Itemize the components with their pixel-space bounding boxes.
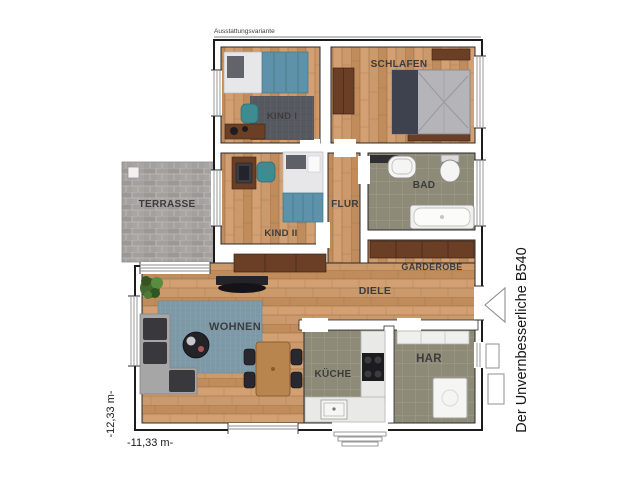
floor-plan-drawing: KIND I SCHLAFEN KIND II FLUR BAD TERRASS… <box>0 0 624 480</box>
toilet <box>440 155 460 182</box>
door-kind1 <box>300 139 320 148</box>
room-label-kind1: KIND I <box>267 111 297 122</box>
room-label-wohnen: WOHNEN <box>209 321 261 333</box>
floor-plan-canvas: KIND I SCHLAFEN KIND II FLUR BAD TERRASS… <box>0 0 624 480</box>
wall-kueche-har <box>384 326 394 423</box>
dimension-height-label: -12,33 m- <box>105 390 117 437</box>
tv-sideboard <box>234 254 326 272</box>
room-label-bad: BAD <box>413 180 436 191</box>
door-har <box>397 318 421 332</box>
kind2-bed <box>283 152 323 222</box>
tv <box>216 276 268 293</box>
door-schlafen <box>334 139 356 157</box>
room-label-terrasse: TERRASSE <box>139 199 196 210</box>
dining-chair <box>291 349 302 365</box>
cooktop <box>362 353 384 381</box>
coffee-table <box>183 332 209 358</box>
window-kind1-left <box>211 70 222 116</box>
door-entrance-gap <box>474 286 484 320</box>
room-label-flur: FLUR <box>331 199 359 210</box>
kind2-desk-chair <box>257 162 275 182</box>
terrace-tile-marker <box>128 167 139 178</box>
room-label-diele: DIELE <box>359 285 391 297</box>
room-label-garderobe: GARDEROBE <box>401 262 462 272</box>
plan-title: Der Unvernbesserliche B540 <box>514 247 530 432</box>
window-bad-right <box>474 160 486 226</box>
bathtub <box>410 205 474 229</box>
kitchen-sink <box>321 400 347 419</box>
bed-dark-throw <box>392 70 418 134</box>
dining-chair <box>291 372 302 388</box>
room-label-kind2: KIND II <box>264 228 297 239</box>
har-shelf <box>397 331 469 344</box>
dining-chair <box>244 349 255 365</box>
schlafen-double-bed <box>392 70 470 134</box>
door-kind2 <box>316 222 330 248</box>
blanket <box>262 52 308 93</box>
desk-item <box>242 126 248 132</box>
kind1-bed <box>224 52 308 93</box>
kitchen-exit-steps <box>334 432 386 446</box>
window-har-right <box>474 342 499 368</box>
bathroom-sink <box>388 156 416 178</box>
door-kueche <box>302 318 328 332</box>
window-wohnen-bottom <box>228 423 298 434</box>
schlafen-shelf-top <box>432 49 470 60</box>
terrace-sliding-door <box>140 262 210 274</box>
window-schlafen-right <box>474 56 486 128</box>
room-label-kueche: KÜCHE <box>314 367 351 380</box>
dimension-width-label: -11,33 m- <box>127 437 174 449</box>
washing-machine <box>433 378 467 418</box>
desk-item <box>230 127 238 135</box>
entrance-step <box>488 374 504 404</box>
entrance-door-arrow <box>485 288 505 322</box>
variant-label: Ausstattungsvariante <box>214 28 275 35</box>
pillow <box>286 155 306 169</box>
room-label-schlafen: SCHLAFEN <box>371 59 428 70</box>
room-label-har: HAR <box>416 353 442 365</box>
window-kind2-terrace <box>211 170 222 226</box>
kind1-desk-chair <box>241 104 258 123</box>
door-bad <box>358 156 370 184</box>
window-wohnen-left <box>128 296 140 366</box>
pillow <box>227 56 244 78</box>
door-kitchen-exit <box>332 421 388 433</box>
dining-chair <box>244 372 255 388</box>
